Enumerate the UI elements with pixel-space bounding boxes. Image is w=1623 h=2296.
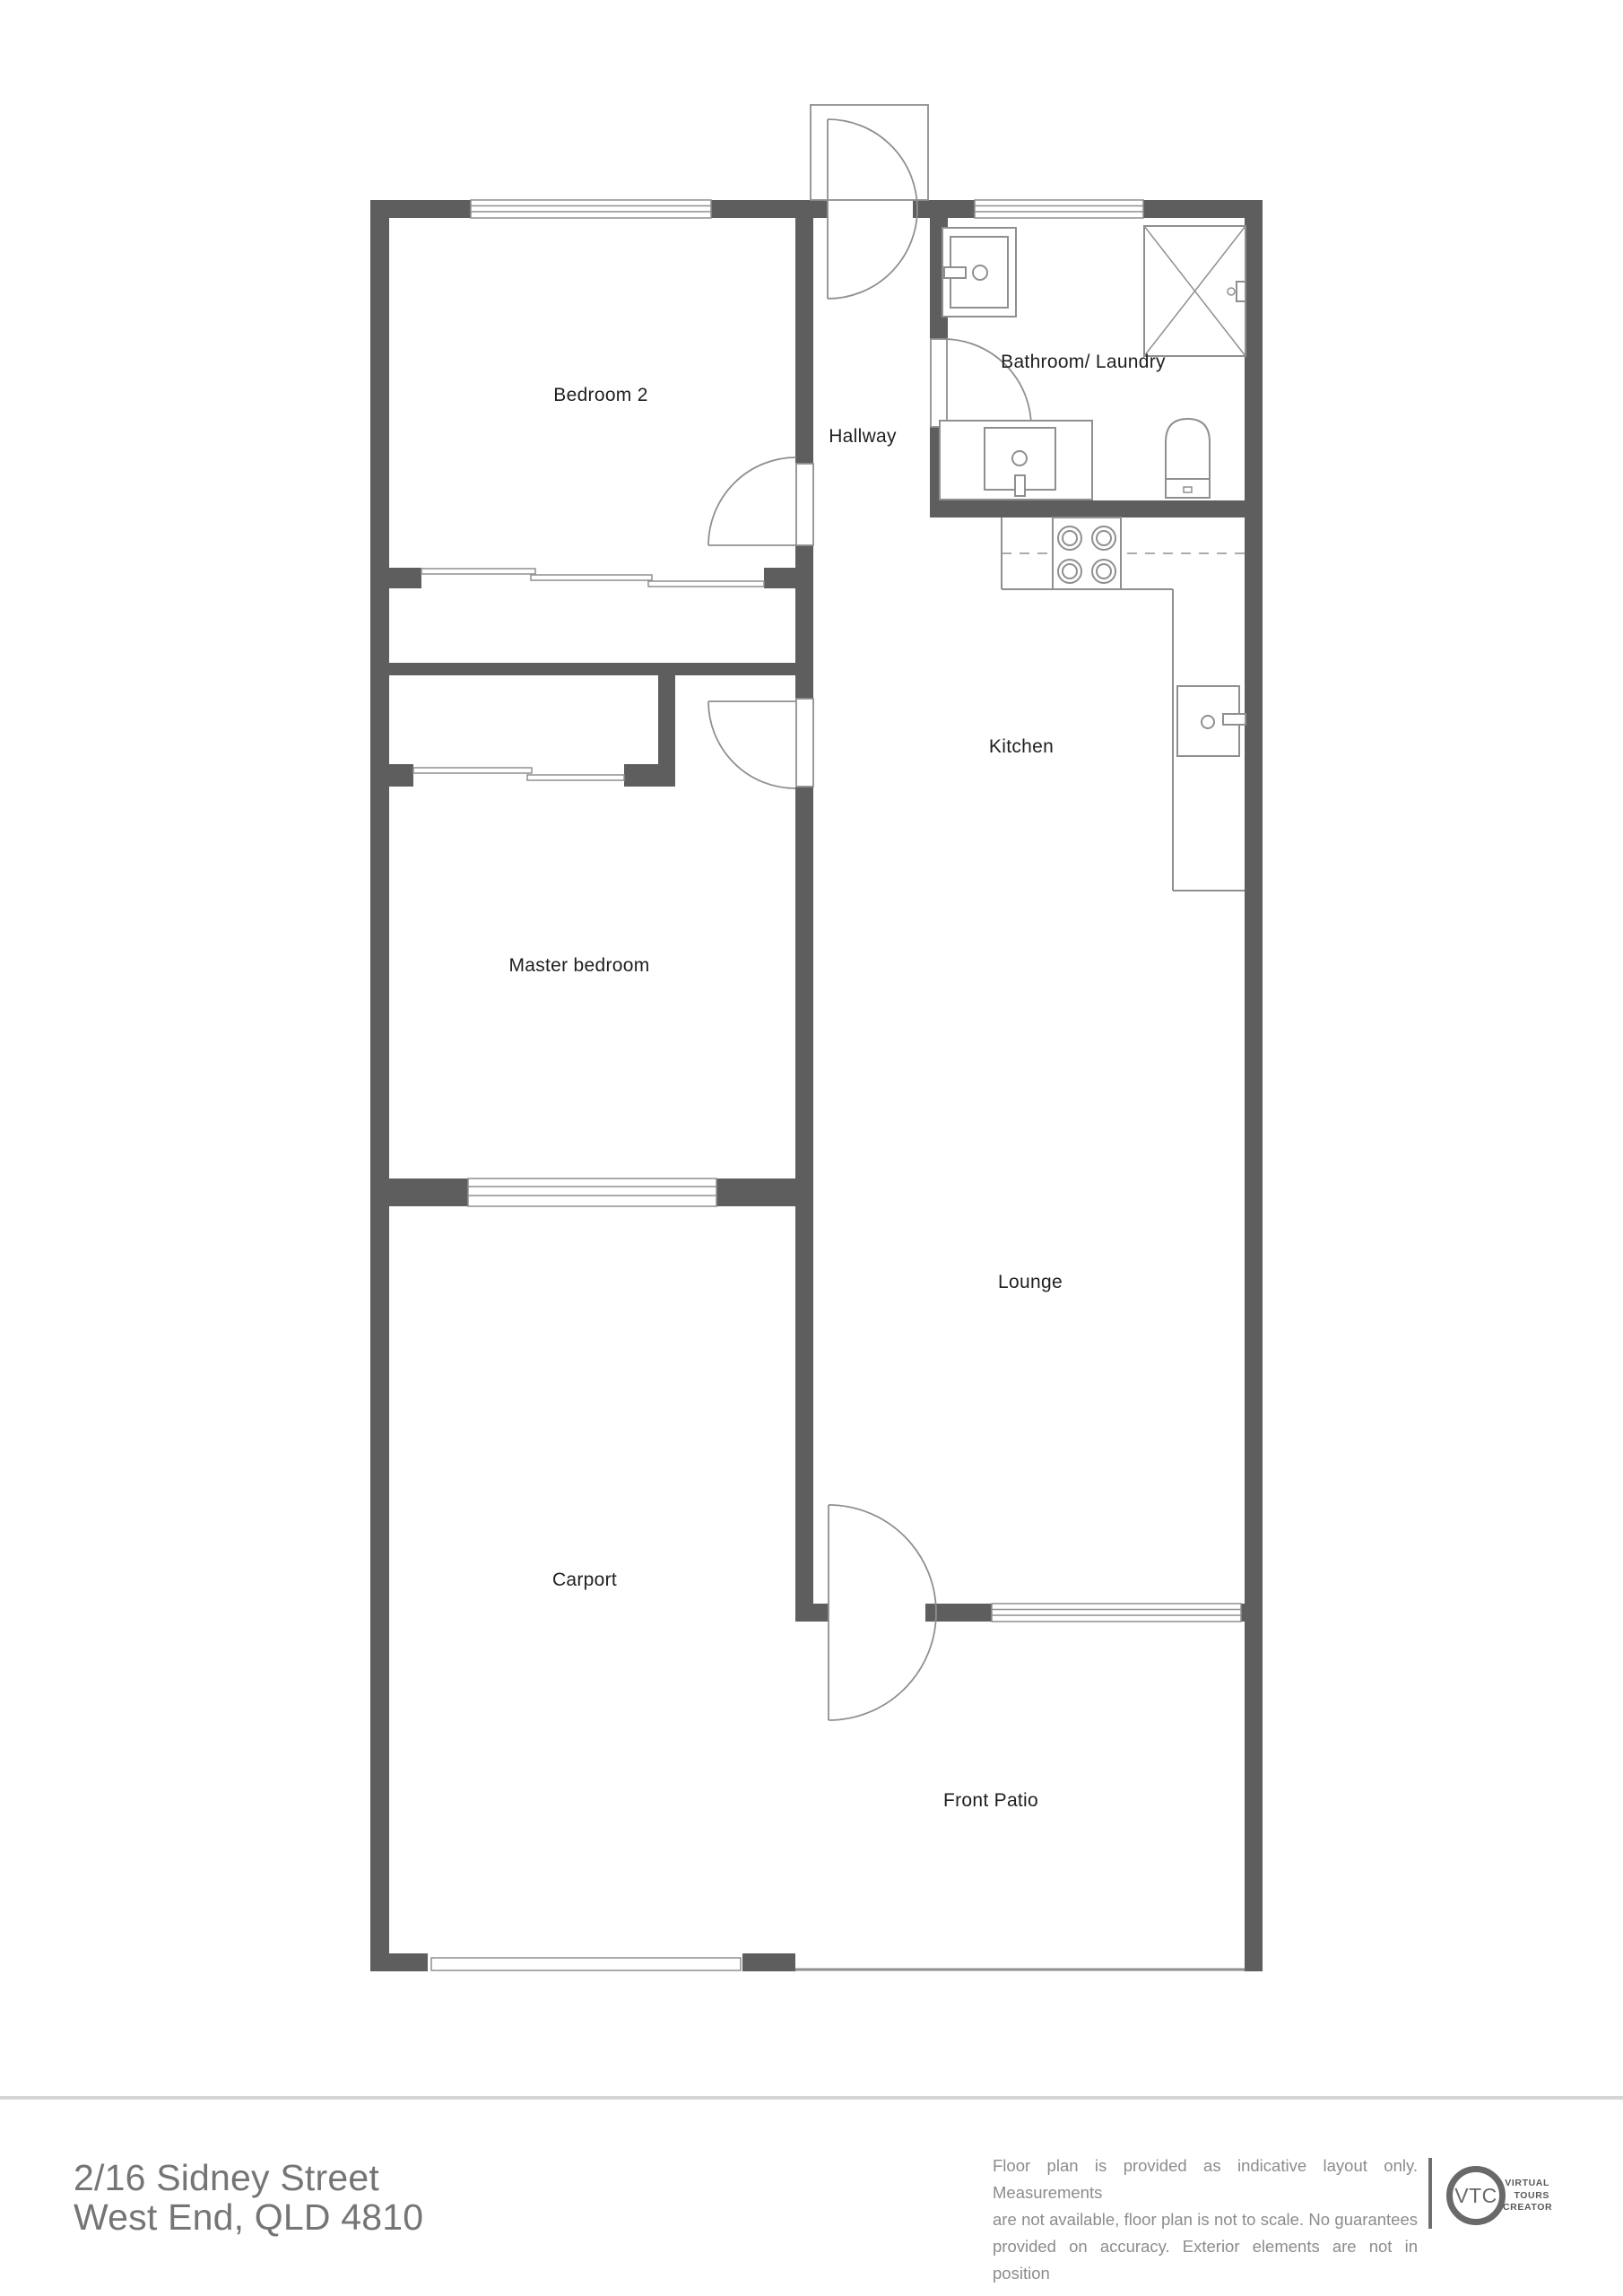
address-line-2: West End, QLD 4810 [74,2197,423,2237]
property-address: 2/16 Sidney Street West End, QLD 4810 [74,2158,423,2237]
disclaimer-line-2: are not available, floor plan is not to … [993,2206,1418,2233]
vanity-sink-icon [942,228,1016,317]
master-door-swing-icon [708,699,813,788]
window-icon-bathroom [975,200,1143,218]
vtc-wordmark-line-1: VIRTUAL [1503,2178,1549,2190]
bedroom2-door-swing-icon [708,457,813,545]
room-label-bedroom2: Bedroom 2 [553,385,647,406]
room-label-master-bedroom: Master bedroom [508,955,649,977]
room-label-bathroom-laundry: Bathroom/ Laundry [1001,352,1166,373]
entry-door-swing-icon [811,105,928,299]
front-door-swing-icon [829,1505,936,1720]
washing-machine-icon [940,421,1092,500]
vtc-monogram: VTC [1454,2184,1497,2208]
disclaimer-line-3: provided on accuracy. Exterior elements … [993,2233,1418,2287]
room-label-kitchen: Kitchen [989,736,1054,758]
cooktop-icon [1053,517,1121,589]
floor-plan: Bedroom 2 Hallway Bathroom/ Laundry Kitc… [0,0,1623,2296]
walls [370,200,1263,1971]
doors [708,105,1031,1720]
toilet-icon [1166,419,1210,498]
disclaimer: Floor plan is provided as indicative lay… [993,2152,1418,2287]
footer-divider [1428,2158,1432,2229]
disclaimer-line-1: Floor plan is provided as indicative lay… [993,2152,1418,2206]
shower-icon [1144,226,1245,356]
room-label-front-patio: Front Patio [943,1790,1038,1812]
window-icon-master-bedroom [468,1178,716,1206]
carport-opening-icon [431,1958,741,1970]
room-label-carport: Carport [552,1570,617,1591]
vtc-wordmark-line-3: CREATOR [1503,2202,1549,2214]
master-robe-sliding-door-icon [413,768,624,780]
room-label-lounge: Lounge [998,1272,1063,1293]
window-icon-lounge [992,1604,1241,1622]
room-label-hallway: Hallway [829,426,897,448]
floor-plan-drawing [0,0,1623,2296]
vtc-logo-icon: VTC [1446,2166,1506,2225]
vtc-wordmark-line-2: TOURS [1503,2190,1549,2203]
vtc-wordmark: VIRTUAL TOURS CREATOR [1503,2178,1549,2214]
bedroom2-sliding-door-icon [421,569,764,587]
window-icon-bedroom2 [471,200,711,218]
kitchen-sink-icon [1177,686,1245,756]
windows [468,200,1241,1622]
footer-separator [0,2096,1623,2100]
address-line-1: 2/16 Sidney Street [74,2158,423,2197]
sliding-doors [413,569,1245,1970]
kitchen-fixtures [1002,517,1245,891]
